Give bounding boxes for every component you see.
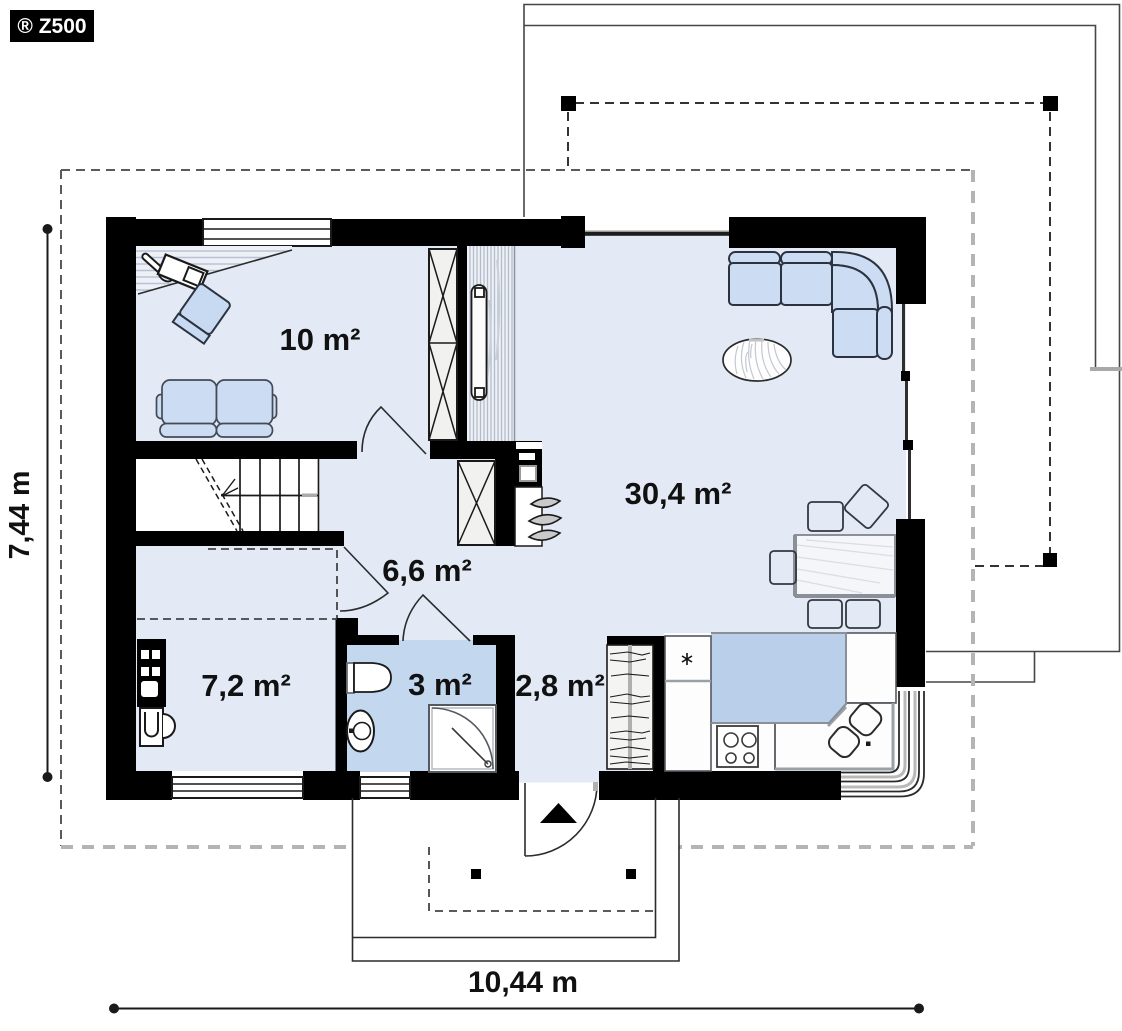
svg-text:6,6 m²: 6,6 m² xyxy=(382,553,472,588)
svg-text:® Z500: ® Z500 xyxy=(17,15,86,38)
svg-text:3 m²: 3 m² xyxy=(408,667,472,702)
svg-text:7,2 m²: 7,2 m² xyxy=(201,668,291,703)
svg-text:10,44 m: 10,44 m xyxy=(468,966,578,999)
svg-text:10 m²: 10 m² xyxy=(280,322,361,357)
svg-text:2,8 m²: 2,8 m² xyxy=(515,668,605,703)
svg-text:7,44 m: 7,44 m xyxy=(4,471,36,560)
svg-text:30,4 m²: 30,4 m² xyxy=(625,476,732,511)
